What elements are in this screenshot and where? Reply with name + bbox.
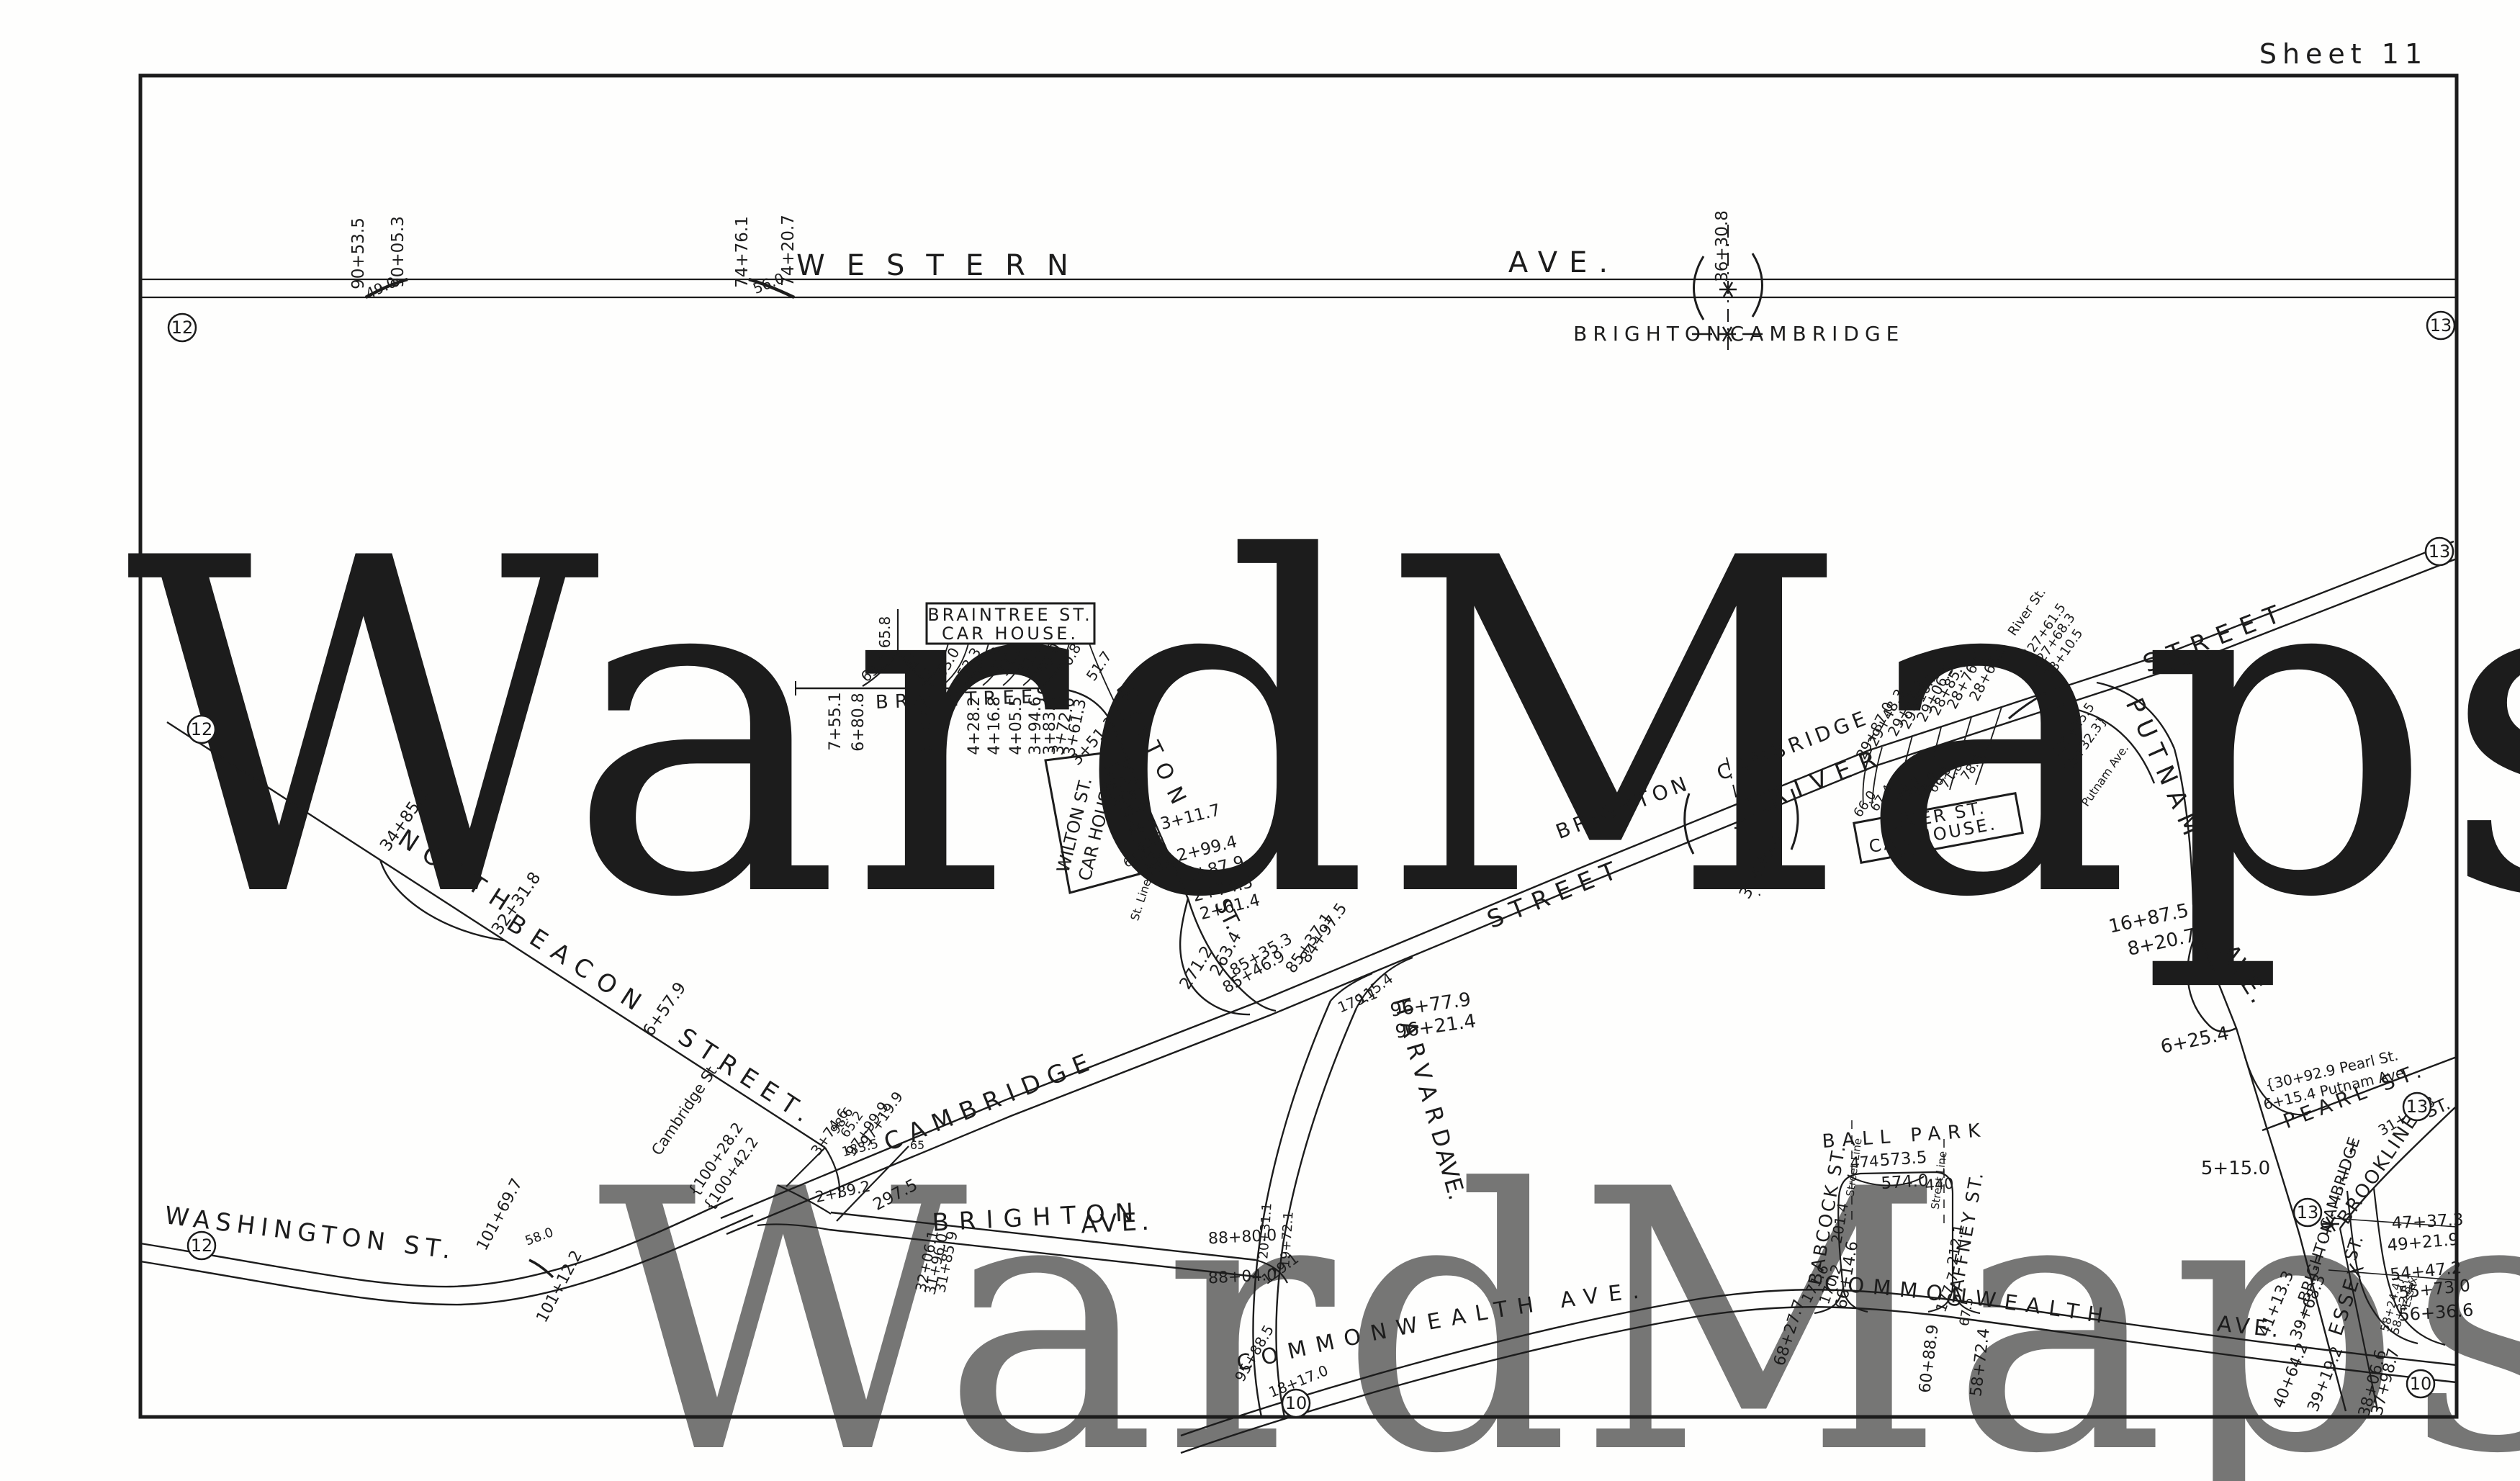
sheet-ref-13: 13 [2403,1093,2431,1120]
map-label: 58.0 [523,1225,556,1248]
sheet-ref-number: 12 [191,719,213,739]
map-label: 6+80.8 [850,693,868,751]
map-label: 36+30.8 [1713,210,1732,282]
sheet-ref-number: 12 [171,318,194,338]
track-map: WardMaps WardMaps Sheet 11 [0,0,2520,1481]
map-label: 6+02.4 [918,694,936,752]
map-label: 7+55.1 [827,692,845,750]
sheet-title: Sheet 11 [2259,38,2428,70]
sheet-ref-12: 12 [168,314,196,341]
street-label-western: WESTERN [796,249,1090,282]
sheet-ref-12: 12 [188,716,215,743]
boundary-paren [1752,253,1763,317]
map-label: 101+69.7 [474,1176,526,1253]
map-label: 6+25.4 [2159,1023,2231,1058]
map-label: 65.8 [876,616,894,649]
map-label: 4+05.5 [1007,696,1025,755]
map-label: 4+16.8 [986,696,1004,755]
map-label: 90+53.5 [349,217,368,289]
braintree-car-house-label: CAR HOUSE. [942,624,1079,644]
boundary-paren [1694,256,1704,320]
sheet-ref-number: 12 [191,1235,213,1256]
map-label: 74+76.1 [733,216,752,288]
sheet-ref-number: 10 [2410,1374,2432,1394]
boundary-label-cambridge: CAMBRIDGE [1730,322,1905,346]
sheet-ref-13: 13 [2427,312,2454,339]
sheet-ref-number: 13 [2406,1097,2429,1117]
sheet-ref-12: 12 [188,1232,215,1259]
sheet-ref-number: 13 [2297,1202,2319,1223]
map-sheet: WardMaps WardMaps Sheet 11 [0,0,2520,1481]
map-label: 4+28.2 [966,696,984,755]
street-label-western-ave: AVE. [1508,246,1619,279]
map-label: 65 [910,1138,924,1152]
sheet-ref-number: 13 [2430,315,2452,336]
sheet-ref-10: 10 [1282,1390,1310,1417]
boundary-label-brighton: BRIGHTON [1573,322,1727,346]
braintree-car-house-label: BRAINTREE ST. [927,605,1093,625]
map-label: 101+12.2 [534,1248,586,1325]
map-label: 573.5 [1879,1148,1928,1171]
sheet-ref-13: 13 [2426,538,2453,565]
map-label: AVE. [1080,1207,1154,1239]
sheet-ref-13: 13 [2294,1199,2321,1226]
sheet-ref-number: 13 [2429,541,2451,562]
sheet-ref-10: 10 [2407,1370,2434,1397]
map-label: 47+37.3 [2391,1210,2464,1233]
sheet-ref-number: 10 [1285,1393,1308,1413]
map-label: 574.0 [1881,1171,1930,1194]
map-label: 5+15.0 [2201,1158,2270,1179]
crossover [529,1260,553,1277]
